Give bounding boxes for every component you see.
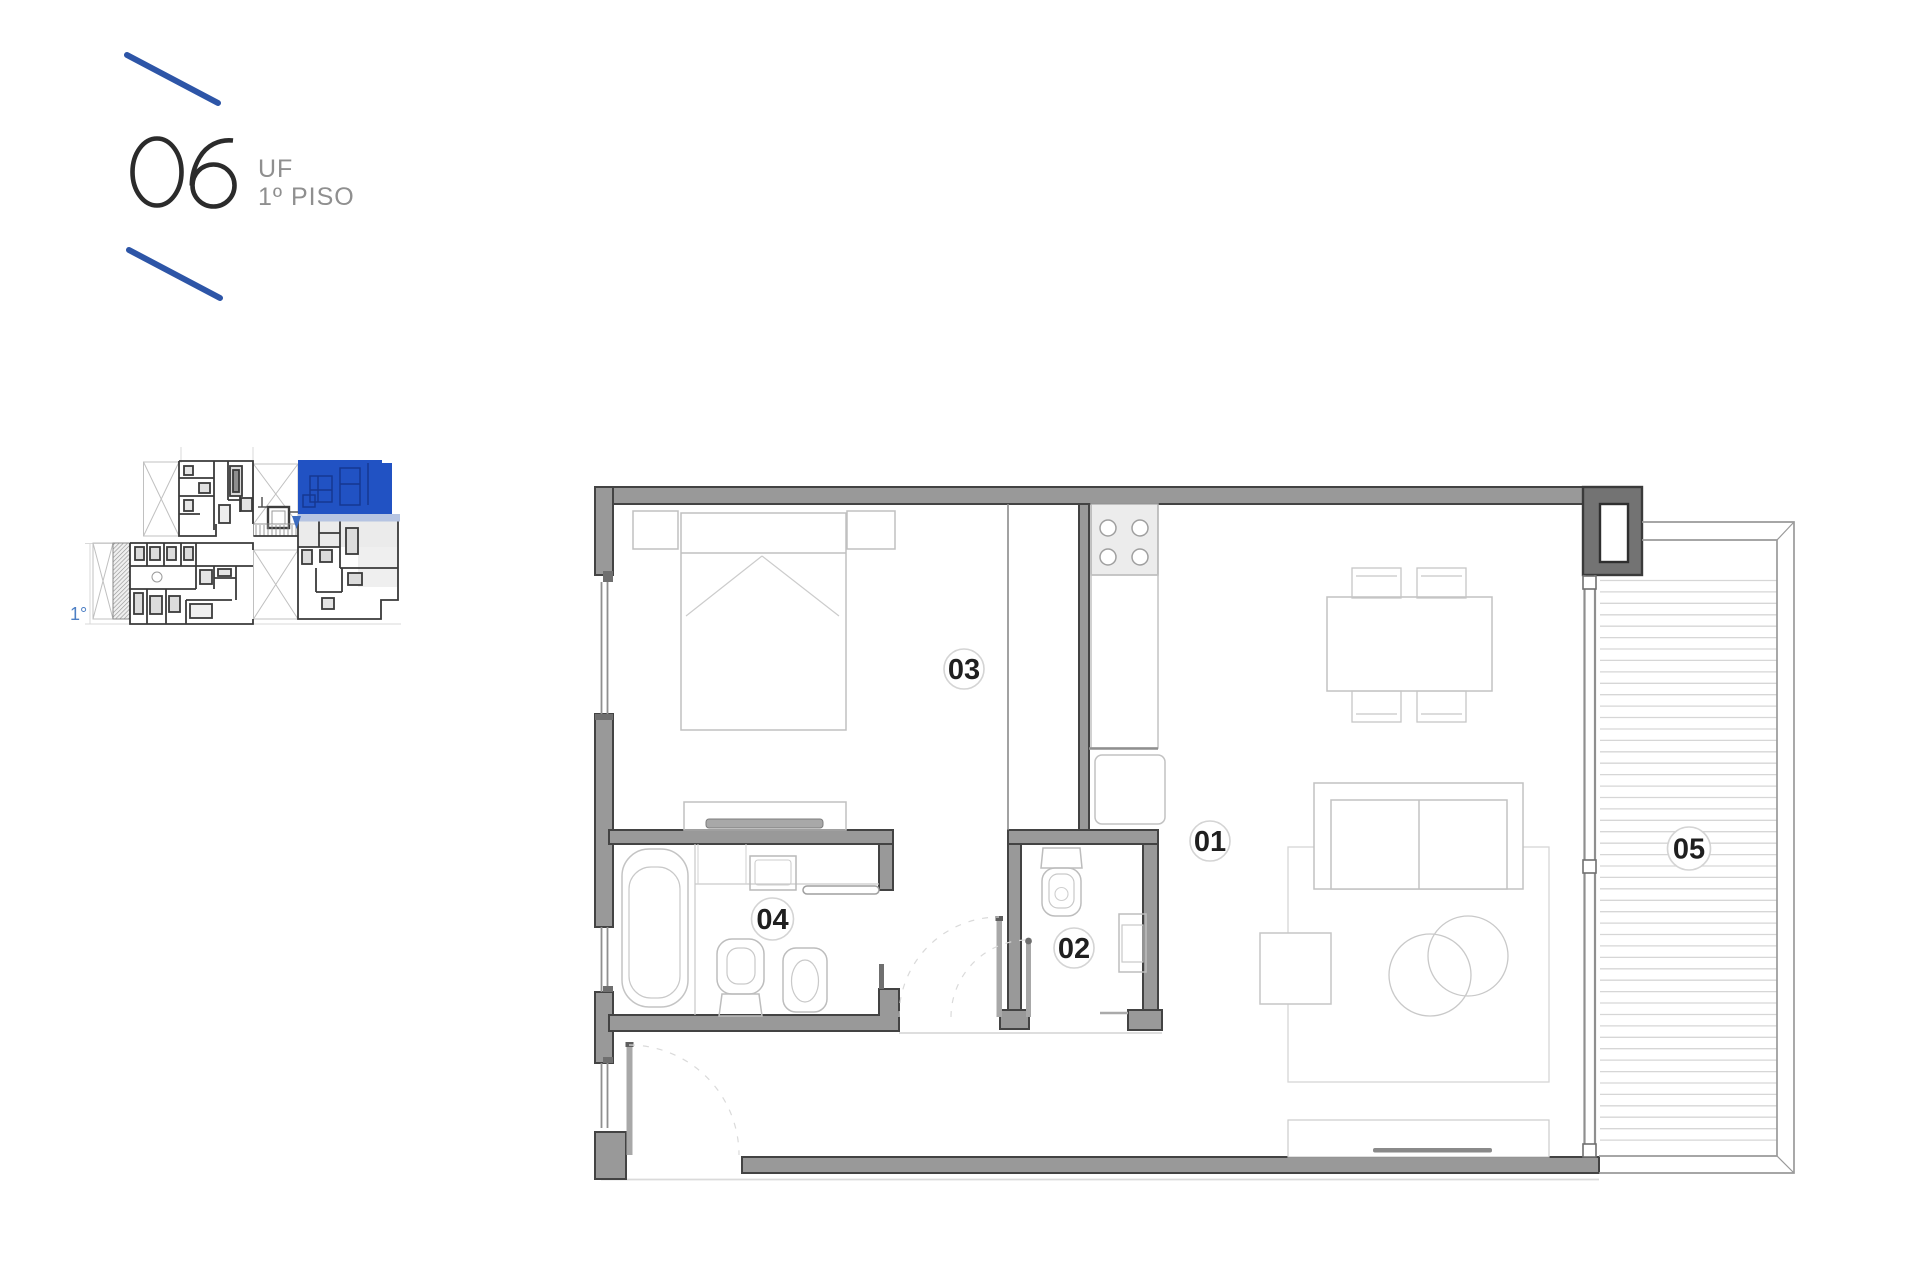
svg-text:05: 05 [1673,834,1705,866]
svg-text:03: 03 [948,654,980,686]
svg-text:UF: UF [258,155,293,183]
svg-text:01: 01 [1194,826,1226,858]
svg-text:1º PISO: 1º PISO [258,183,355,211]
svg-text:04: 04 [756,904,788,936]
svg-text:1°: 1° [70,604,87,624]
svg-text:02: 02 [1058,933,1090,965]
